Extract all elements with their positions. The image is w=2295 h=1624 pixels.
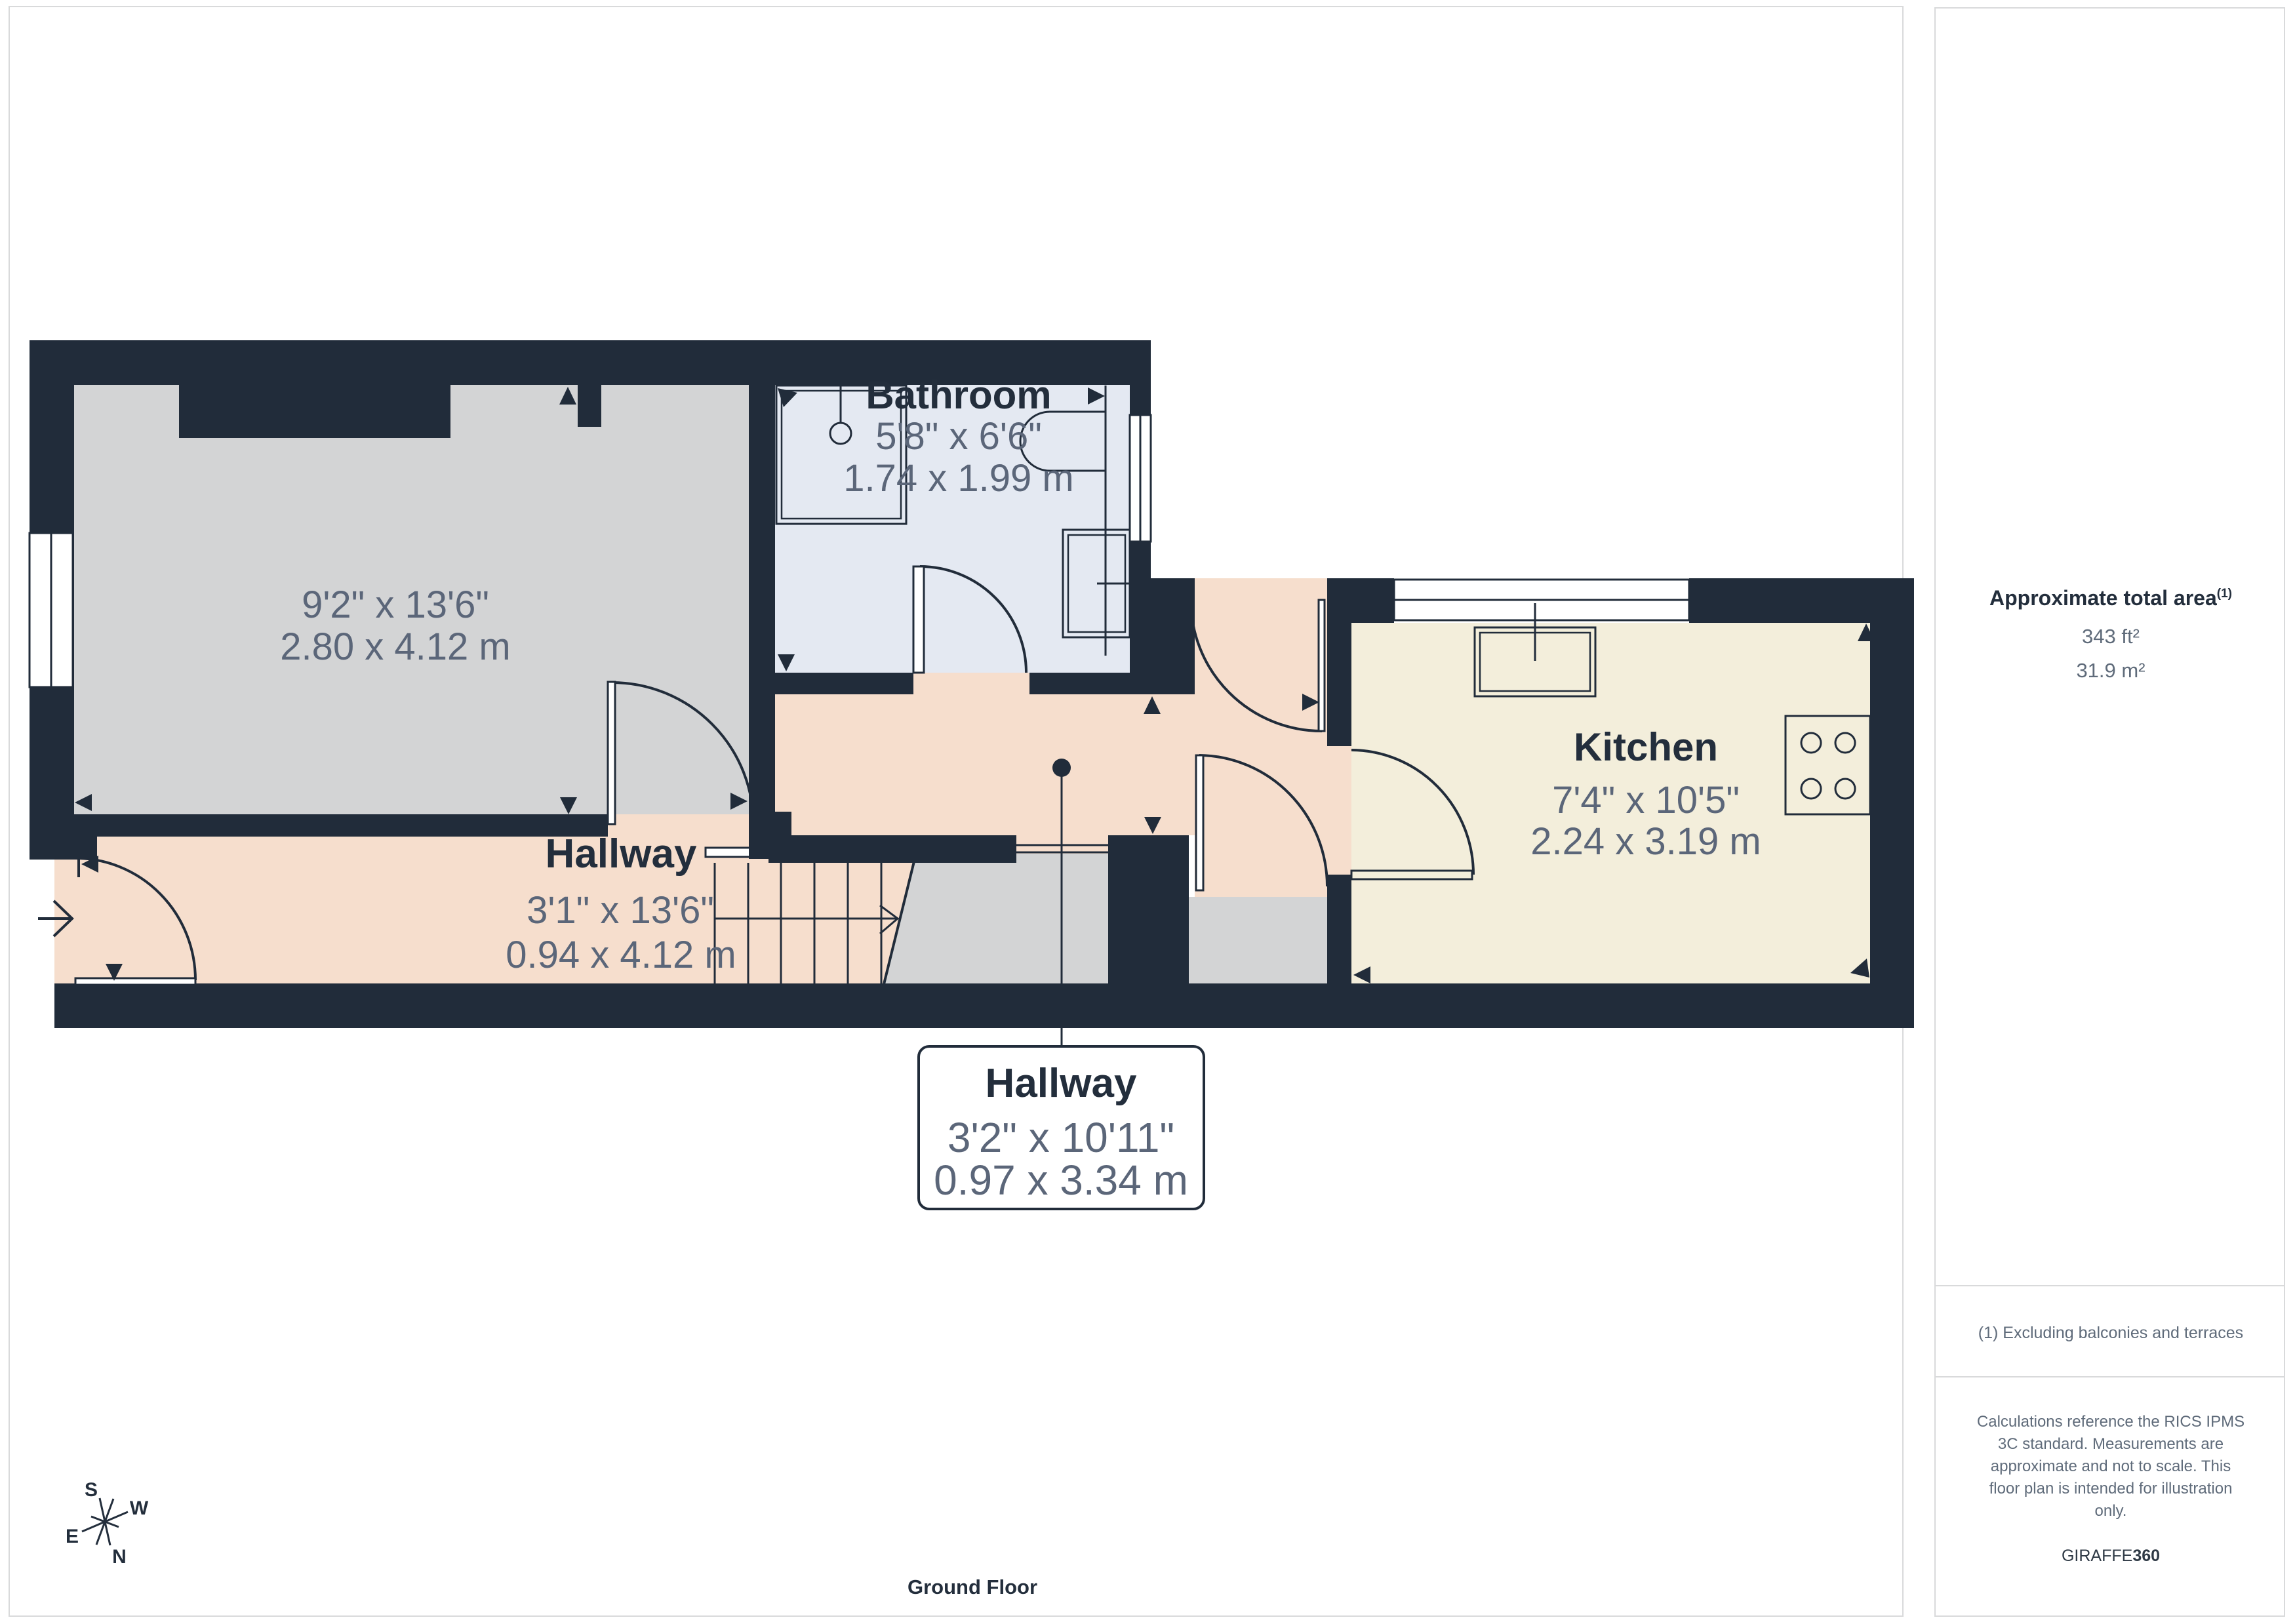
svg-text:S: S	[85, 1479, 98, 1501]
svg-text:2.24 x 3.19 m: 2.24 x 3.19 m	[1530, 820, 1761, 863]
svg-text:Bathroom: Bathroom	[866, 373, 1051, 417]
svg-text:3'2" x 10'11": 3'2" x 10'11"	[948, 1114, 1174, 1161]
svg-text:GIRAFFE360: GIRAFFE360	[2062, 1547, 2160, 1565]
svg-text:3'1" x 13'6": 3'1" x 13'6"	[527, 889, 714, 932]
svg-text:0.97 x 3.34 m: 0.97 x 3.34 m	[934, 1157, 1188, 1204]
svg-text:2.80 x 4.12 m: 2.80 x 4.12 m	[280, 625, 510, 668]
svg-text:Ground Floor: Ground Floor	[908, 1575, 1037, 1598]
svg-text:9'2" x 13'6": 9'2" x 13'6"	[302, 584, 489, 626]
svg-text:Approximate total area(1): Approximate total area(1)	[1989, 586, 2232, 610]
svg-text:floor plan is intended for ill: floor plan is intended for illustration	[1989, 1480, 2233, 1497]
svg-text:0.94 x 4.12 m: 0.94 x 4.12 m	[506, 934, 736, 976]
svg-text:Kitchen: Kitchen	[1574, 725, 1718, 769]
svg-text:1.74 x 1.99 m: 1.74 x 1.99 m	[843, 457, 1073, 500]
svg-text:343 ft²: 343 ft²	[2082, 625, 2140, 648]
svg-text:5'8" x 6'6": 5'8" x 6'6"	[875, 415, 1042, 458]
svg-text:Hallway: Hallway	[546, 831, 697, 877]
svg-text:approximate and not to scale.: approximate and not to scale. This	[1991, 1457, 2231, 1475]
svg-text:7'4" x 10'5": 7'4" x 10'5"	[1552, 779, 1740, 822]
svg-text:W: W	[130, 1497, 149, 1519]
svg-text:N: N	[112, 1546, 127, 1568]
svg-text:Hallway: Hallway	[986, 1061, 1137, 1106]
svg-text:Calculations reference the RIC: Calculations reference the RICS IPMS	[1977, 1413, 2245, 1431]
svg-text:31.9 m²: 31.9 m²	[2076, 659, 2145, 682]
svg-text:3C standard. Measurements are: 3C standard. Measurements are	[1998, 1435, 2224, 1453]
svg-text:(1) Excluding balconies and te: (1) Excluding balconies and terraces	[1978, 1324, 2243, 1342]
svg-text:E: E	[66, 1526, 79, 1547]
svg-text:only.: only.	[2095, 1502, 2127, 1520]
